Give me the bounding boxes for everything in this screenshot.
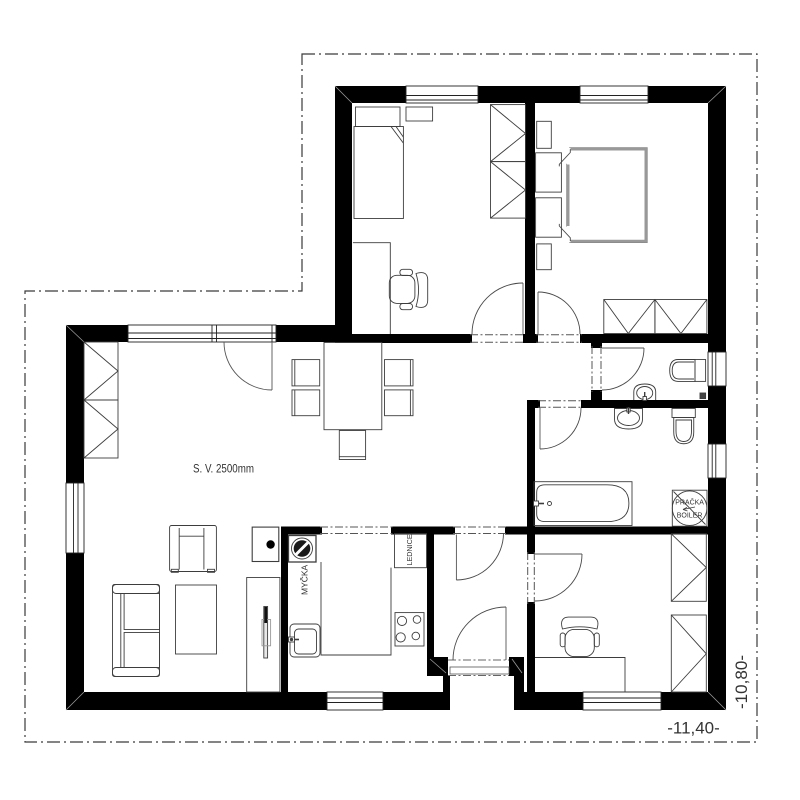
svg-text:BOILER: BOILER xyxy=(677,513,703,520)
svg-text:-11,40-: -11,40- xyxy=(667,719,720,738)
svg-text:MYČKA: MYČKA xyxy=(300,564,310,595)
svg-text:S. V. 2500mm: S. V. 2500mm xyxy=(193,462,254,476)
svg-text:PRAČKA: PRAČKA xyxy=(675,498,704,507)
svg-text:-10,80-: -10,80- xyxy=(732,655,751,709)
svg-text:LEDNICE: LEDNICE xyxy=(405,534,414,565)
